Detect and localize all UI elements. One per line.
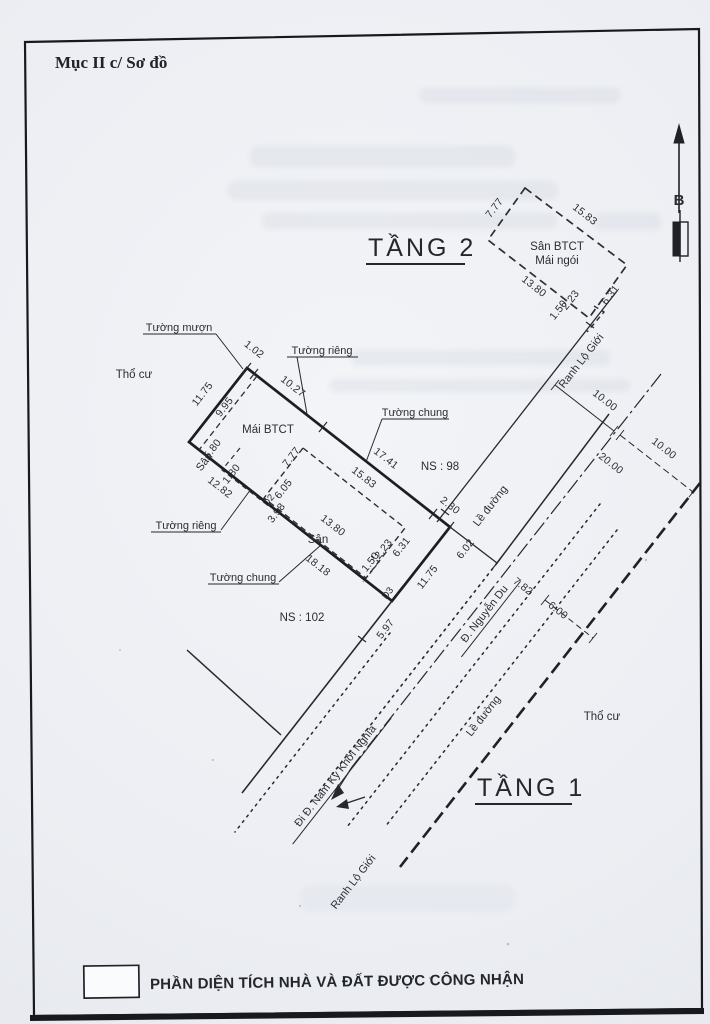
street-nguyen-du-label: Đ. Nguyễn Du <box>458 583 511 645</box>
section-title: Mục II c/ Sơ đồ <box>55 53 167 72</box>
dim-court-side: 6.31 <box>390 535 413 559</box>
north-label: B <box>674 192 685 209</box>
road-boundary-line-2 <box>400 483 700 867</box>
neighbor-ns102: NS : 102 <box>280 612 325 624</box>
wall-label-private-1: Tường riêng <box>291 345 352 357</box>
curb-line-solid <box>497 414 609 563</box>
direction-nkkn: Đi Đ. Nam Kỳ Khởi Nghĩa <box>282 709 392 844</box>
dim-street-width: 7.82 <box>511 575 535 598</box>
legend: PHẦN DIỆN TÍCH NHÀ VÀ ĐẤT ĐƯỢC CÔNG NHẬN <box>84 960 524 998</box>
floor2-dim-side: 6.31 <box>599 283 622 307</box>
dim-yard3: 6.05 <box>272 477 295 501</box>
land-label-west: Thổ cư <box>116 369 153 381</box>
floor2-area-label-1: Sân BTCT <box>530 241 584 253</box>
curb-label-2: Lề đường <box>464 693 503 738</box>
compass-flag-outline <box>680 222 688 256</box>
street-nguyen-du: Đ. Nguyễn Du <box>450 572 521 657</box>
dim-court-short: 7.77 <box>280 445 303 469</box>
north-arrow: B <box>673 125 688 262</box>
roof-label: Mái BTCT <box>242 424 294 436</box>
boundary-extension-south <box>242 601 392 793</box>
scanned-survey-page: Mục II c/ Sơ đồ B TẦNG 2 Sân BTCT Mái ng… <box>0 0 710 1024</box>
dim-left-side: 11.75 <box>190 380 216 409</box>
dim-full-width: 20.00 <box>596 450 625 477</box>
direction-nkkn-label: Đi Đ. Nam Kỳ Khởi Nghĩa <box>292 722 379 829</box>
dim-yard1: 5.80 <box>201 437 224 461</box>
neighbor-ns98: NS : 98 <box>421 461 459 473</box>
neighbor-wall-line <box>187 650 281 735</box>
wall-label-borrowed: Tường mượn <box>146 322 212 334</box>
site-plan-drawing: Mục II c/ Sơ đồ B TẦNG 2 Sân BTCT Mái ng… <box>0 0 710 1024</box>
land-label-east: Thổ cư <box>584 711 621 723</box>
tick <box>589 633 597 643</box>
dim-half-width-2: 10.00 <box>649 435 678 462</box>
floor1-building: Mái BTCT Sân Sân 1.02 11.75 9.95 10.27 1… <box>116 322 501 793</box>
legend-label: PHẦN DIỆN TÍCH NHÀ VÀ ĐẤT ĐƯỢC CÔNG NHẬN <box>150 970 524 993</box>
floor2-plan: TẦNG 2 Sân BTCT Mái ngói 7.77 15.83 13.8… <box>366 188 627 332</box>
yard-label-center: Sân <box>308 534 328 546</box>
dimension-ticks <box>243 363 501 642</box>
curb-label-1: Lề đường <box>471 483 510 528</box>
page-border-bottom-thick <box>30 1011 704 1018</box>
compass-flag-filled <box>673 222 680 256</box>
dim-to-curb: 6.02 <box>454 537 477 561</box>
north-arrow-head <box>674 125 684 143</box>
wall-label-shared-2: Tường chung <box>210 572 277 584</box>
floor2-area-label-2: Mái ngói <box>535 255 578 267</box>
direction-arrow-head <box>336 799 349 809</box>
legend-swatch <box>84 965 139 998</box>
floor2-heading: TẦNG 2 <box>368 233 476 262</box>
tick <box>616 430 624 440</box>
tick <box>541 595 549 605</box>
floor1-heading: TẦNG 1 <box>477 773 585 802</box>
dim-left-inner: 9.95 <box>213 395 236 419</box>
floor2-dim-long: 15.83 <box>570 201 599 228</box>
dim-offset: 6.00 <box>546 599 570 622</box>
wall-label-private-2: Tường riêng <box>155 520 216 532</box>
dim-jog: 1.02 <box>242 338 266 361</box>
floor2-dim-bottom: 13.80 <box>519 273 548 300</box>
wall-label-shared-1: Tường chung <box>382 407 449 419</box>
direction-underline <box>293 718 392 844</box>
street-underline <box>461 581 520 657</box>
